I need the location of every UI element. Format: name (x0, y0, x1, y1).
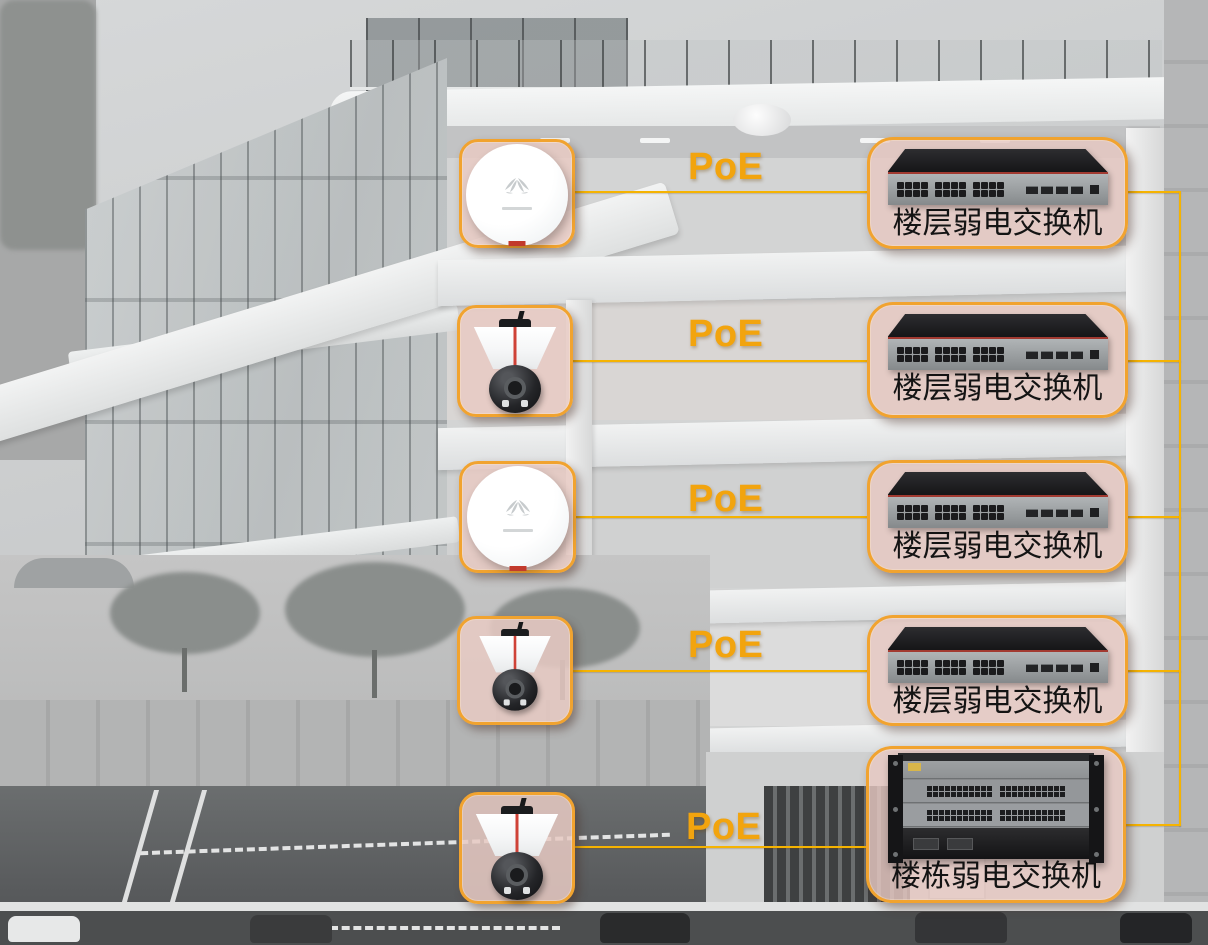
floor-switch-label: 楼层弱电交换机 (870, 530, 1125, 564)
camera-ir-led (502, 400, 509, 407)
uplink-stub-floor3 (1127, 516, 1181, 518)
camera-lens (504, 377, 526, 399)
floor-switch-label: 楼层弱电交换机 (870, 207, 1125, 241)
right-exterior-wall (1164, 0, 1208, 945)
ptz-camera-icon (475, 798, 559, 898)
poe-label-floor1: PoE (688, 146, 763, 189)
device-box-floor4 (457, 616, 573, 725)
chassis-switch-icon (892, 759, 1100, 859)
camera-red-stripe (514, 636, 517, 673)
poe-label-floor3: PoE (688, 478, 763, 521)
camera-ir-led (520, 699, 526, 705)
tree-trunk (372, 650, 377, 698)
ceiling-dome (733, 104, 791, 136)
parking-lane-dashes (330, 926, 560, 930)
floor-switch-icon (888, 472, 1108, 529)
poe-cable-floor4 (573, 670, 868, 672)
car (8, 916, 80, 942)
floor-switch-icon (888, 149, 1108, 206)
uplink-stub-floor4 (1127, 670, 1181, 672)
camera-ir-led (521, 400, 528, 407)
chassis-yellow-tag (908, 763, 921, 771)
car (600, 913, 690, 943)
ap-label-mark (503, 529, 533, 532)
poe-topology-diagram: PoE PoE PoE PoE PoE (0, 0, 1208, 945)
floor-switch-box-2: 楼层弱电交换机 (867, 302, 1128, 418)
camera-lens (505, 679, 524, 698)
wifi-ap-icon (466, 144, 568, 246)
floor-switch-label: 楼层弱电交换机 (870, 685, 1125, 719)
distant-trees (0, 0, 96, 250)
building-switch-label: 楼栋弱电交换机 (869, 860, 1123, 894)
poe-cable-floor1 (575, 191, 868, 193)
poe-label-floor2: PoE (688, 313, 763, 356)
uplink-stub-building-switch (1123, 824, 1181, 826)
camera-ir-led (504, 887, 511, 894)
poe-label-ground: PoE (686, 806, 761, 849)
plaza-umbrella (14, 558, 134, 588)
walkway (0, 700, 710, 786)
plaza-tree (285, 562, 465, 657)
ap-mount-notch (509, 241, 526, 246)
poe-label-floor4: PoE (688, 624, 763, 667)
floor-switch-label: 楼层弱电交换机 (870, 372, 1125, 406)
huawei-logo-icon (504, 178, 530, 200)
building-switch-box: 楼栋弱电交换机 (866, 746, 1126, 903)
floor-switch-box-3: 楼层弱电交换机 (867, 460, 1128, 573)
camera-ir-led (523, 887, 530, 894)
camera-lens (506, 864, 528, 886)
device-box-ground (459, 792, 575, 904)
uplink-trunk-riser (1179, 191, 1181, 826)
floor-switch-icon (888, 314, 1108, 371)
tree-trunk (182, 648, 187, 692)
car (1120, 913, 1192, 943)
car (250, 915, 332, 943)
ap-label-mark (502, 207, 532, 210)
uplink-stub-floor2 (1127, 360, 1181, 362)
floor-switch-icon (888, 627, 1108, 684)
ptz-camera-icon (478, 622, 551, 709)
ap-mount-notch (509, 566, 526, 571)
interior-column (1126, 128, 1164, 788)
wifi-ap-icon (467, 466, 569, 568)
poe-cable-floor2 (573, 360, 868, 362)
device-box-floor2 (457, 305, 573, 417)
floor-switch-box-4: 楼层弱电交换机 (867, 615, 1128, 726)
device-box-floor1 (459, 139, 575, 248)
huawei-logo-icon (505, 500, 531, 522)
camera-ir-led (504, 699, 510, 705)
ceiling-light (640, 138, 670, 143)
plaza-tree (110, 572, 260, 654)
device-box-floor3 (459, 461, 576, 573)
floor-switch-box-1: 楼层弱电交换机 (867, 137, 1128, 249)
camera-red-stripe (516, 814, 519, 856)
uplink-stub-floor1 (1127, 191, 1181, 193)
camera-red-stripe (514, 327, 517, 369)
ptz-camera-icon (473, 311, 557, 411)
car (915, 912, 1007, 943)
